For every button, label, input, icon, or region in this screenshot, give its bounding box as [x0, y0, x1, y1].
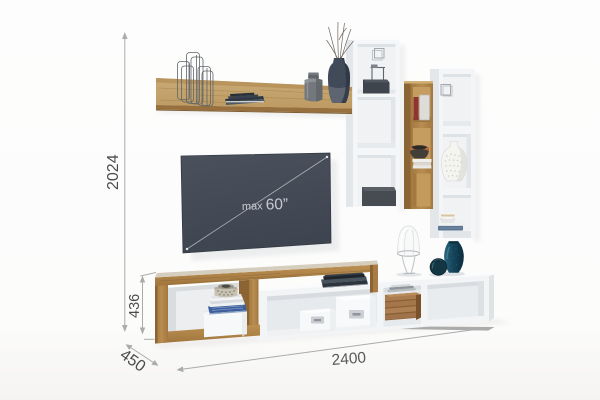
svg-text:2024: 2024	[105, 154, 122, 190]
svg-text:436: 436	[127, 294, 143, 318]
svg-text:2400: 2400	[331, 349, 367, 369]
